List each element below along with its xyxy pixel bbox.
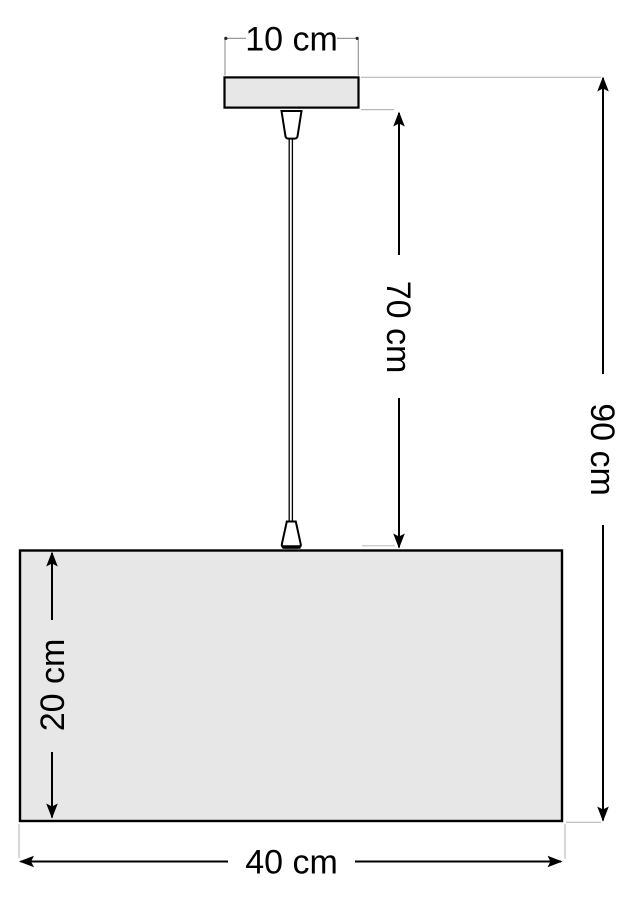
svg-text:90 cm: 90 cm [583, 403, 621, 496]
svg-text:10 cm: 10 cm [245, 21, 338, 59]
svg-text:40 cm: 40 cm [245, 844, 338, 882]
svg-text:20 cm: 20 cm [34, 639, 72, 732]
svg-text:70 cm: 70 cm [379, 281, 417, 374]
